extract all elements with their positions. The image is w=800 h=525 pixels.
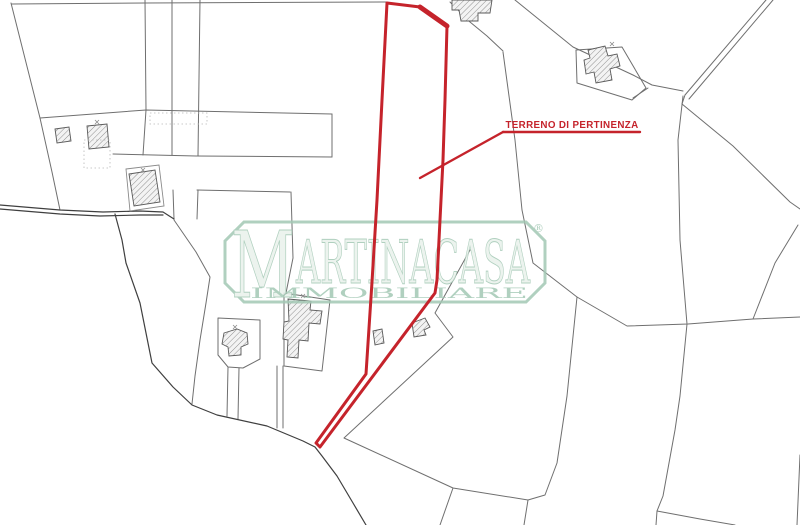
parcel-red-outline	[316, 3, 447, 447]
boundary-left-diagonal	[11, 3, 60, 210]
registered-trademark-symbol: ®	[533, 222, 544, 235]
building-footprint	[373, 329, 384, 345]
building-footprint	[55, 127, 71, 143]
building-footprint	[584, 46, 620, 83]
road-pair-ne	[685, 0, 773, 99]
terreno-label: TERRENO DI PERTINENZA	[505, 120, 638, 131]
building-footprint	[129, 170, 160, 206]
parcel-red-outline-thick-segment	[420, 7, 447, 26]
cadastral-map: M ARTINACASA IMMOBILIARE ® TERRENO DI PE…	[0, 0, 800, 525]
leader-line	[420, 132, 503, 178]
watermark-initial: M	[231, 212, 295, 319]
building-footprint	[87, 124, 109, 149]
agency-watermark: M ARTINACASA IMMOBILIARE ®	[225, 212, 545, 319]
building-footprint	[222, 329, 248, 356]
cadastral-map-page: M ARTINACASA IMMOBILIARE ® TERRENO DI PE…	[0, 0, 800, 525]
watermark-subtitle: IMMOBILIARE	[250, 286, 528, 302]
